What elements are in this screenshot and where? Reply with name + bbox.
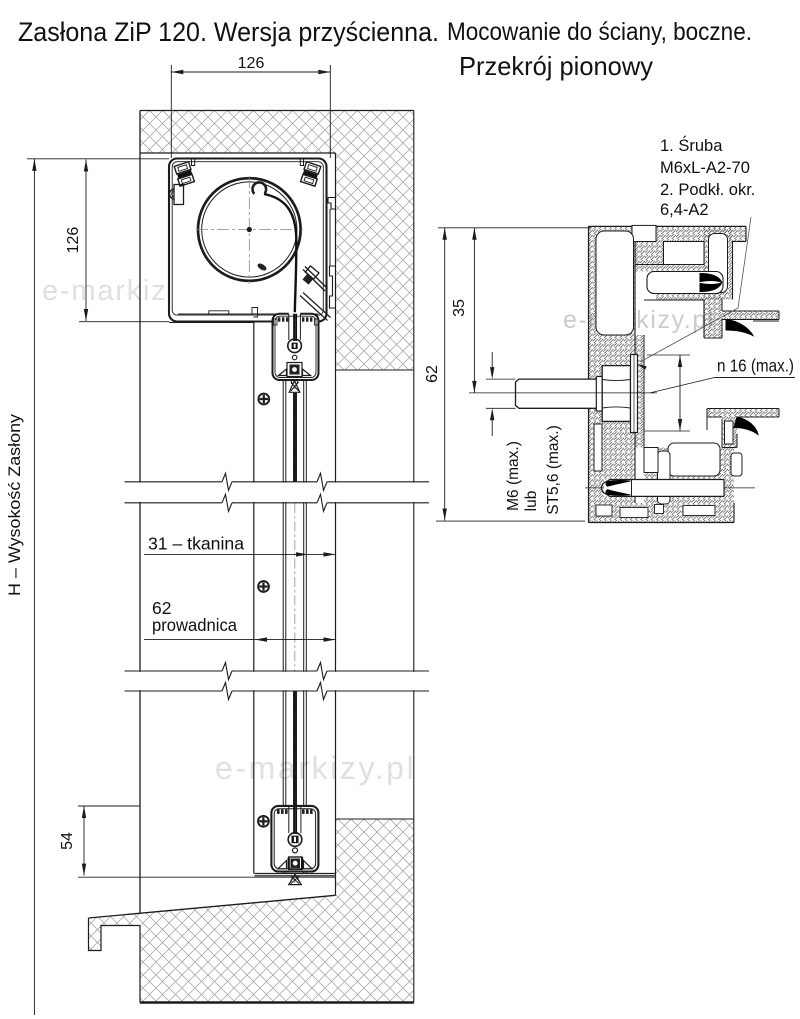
svg-text:Mocowanie do ściany, boczne.: Mocowanie do ściany, boczne.	[447, 18, 752, 46]
svg-text:6,4-A2: 6,4-A2	[660, 201, 709, 219]
svg-text:prowadnica: prowadnica	[152, 615, 237, 635]
svg-text:2. Podkł. okr.: 2. Podkł. okr.	[660, 181, 755, 199]
svg-text:Przekrój pionowy: Przekrój pionowy	[459, 51, 653, 81]
svg-text:ST5,6 (max.): ST5,6 (max.)	[545, 425, 562, 515]
svg-text:H – Wysokość Zasłony: H – Wysokość Zasłony	[6, 413, 24, 596]
svg-text:M6xL-A2-70: M6xL-A2-70	[660, 159, 750, 177]
svg-text:lub: lub	[523, 491, 540, 512]
svg-text:62: 62	[424, 365, 441, 383]
svg-text:35: 35	[451, 299, 468, 317]
svg-text:n 16 (max.): n 16 (max.)	[717, 356, 794, 376]
svg-text:126: 126	[238, 55, 265, 72]
svg-text:M6 (max.): M6 (max.)	[505, 441, 522, 511]
svg-text:1. Śruba: 1. Śruba	[660, 136, 723, 155]
svg-text:Zasłona ZiP 120. Wersja przyśc: Zasłona ZiP 120. Wersja przyścienna.	[18, 17, 439, 47]
svg-text:126: 126	[65, 227, 82, 254]
svg-text:54: 54	[59, 832, 76, 850]
svg-text:e-markizy.pl: e-markizy.pl	[563, 306, 715, 334]
svg-text:e-markizy.pl: e-markizy.pl	[215, 750, 416, 786]
svg-text:31 – tkanina: 31 – tkanina	[148, 534, 244, 554]
